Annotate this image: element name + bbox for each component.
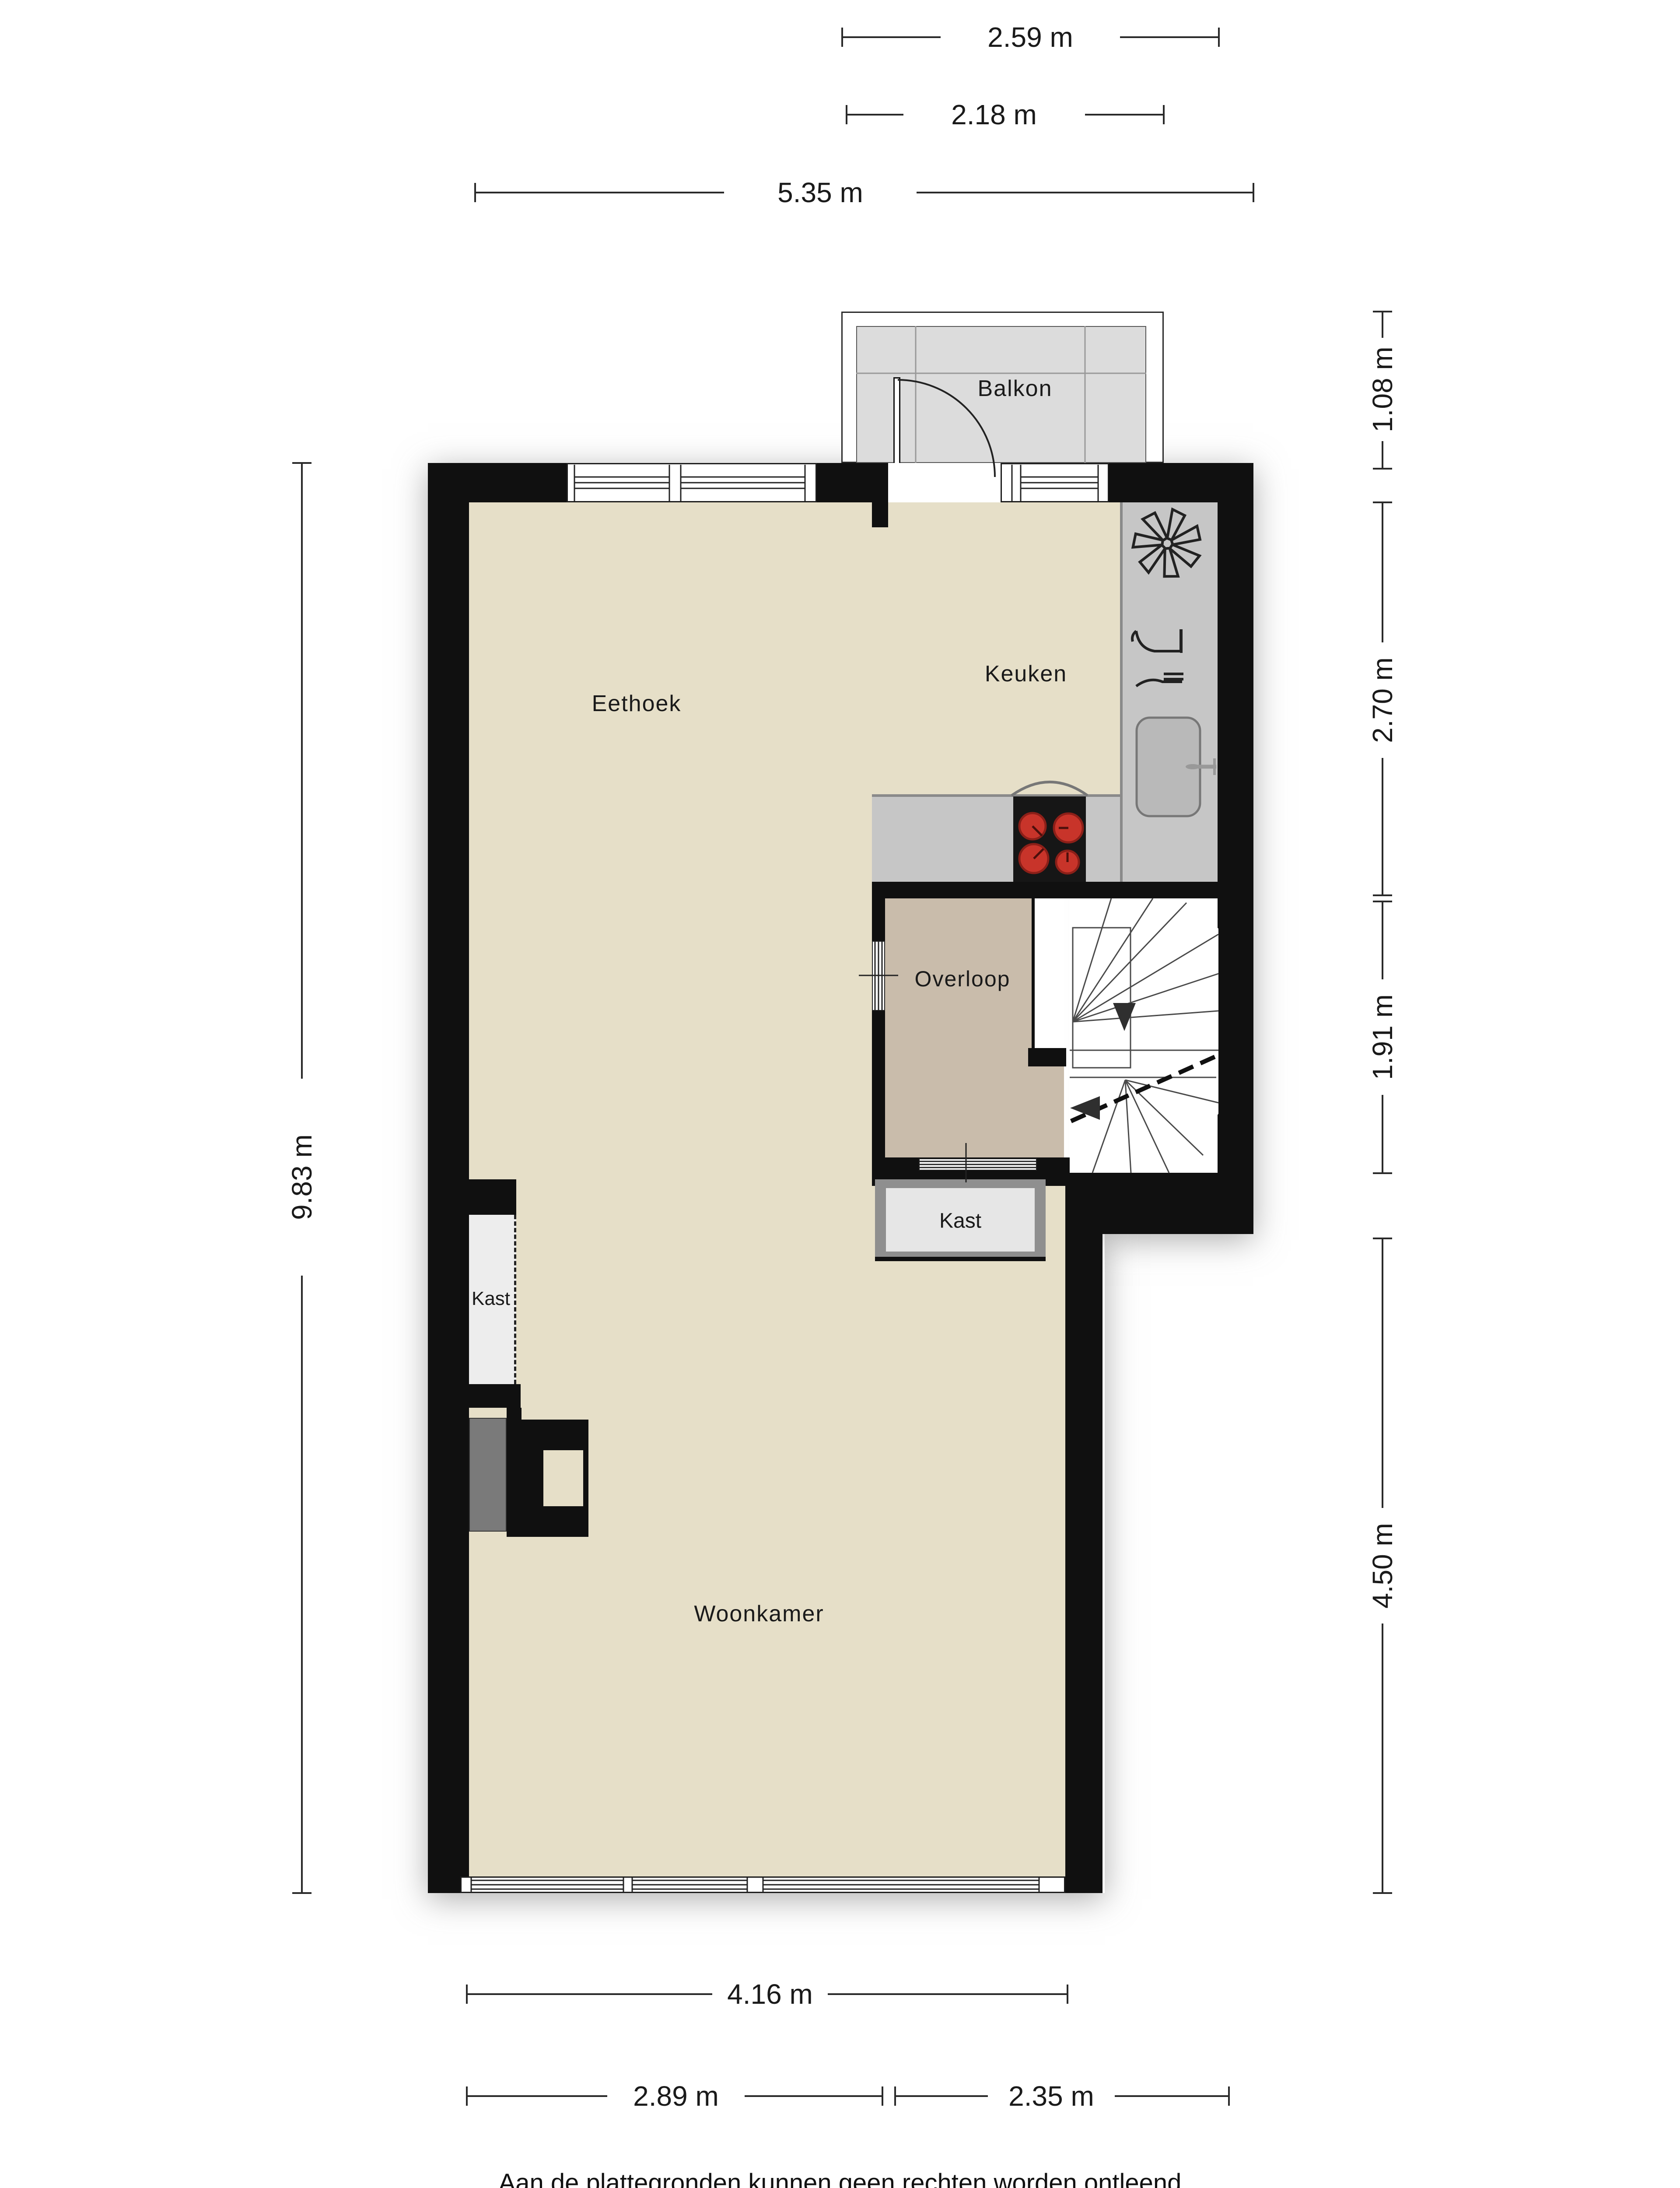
cooktop-burners bbox=[1019, 813, 1083, 873]
extractor-fan-icon bbox=[1130, 509, 1204, 582]
room-label-kast-room: Kast bbox=[939, 1209, 981, 1233]
window-glazing-overloop bbox=[859, 942, 898, 1010]
dim-bottom-235: 2.35 m bbox=[1008, 2080, 1094, 2112]
dishwasher-icon bbox=[1132, 629, 1183, 686]
dim-top-259: 2.59 m bbox=[987, 21, 1073, 53]
room-label-balkon: Balkon bbox=[978, 375, 1053, 402]
dim-right-191: 1.91 m bbox=[1366, 994, 1399, 1080]
dim-bottom-289: 2.89 m bbox=[633, 2080, 719, 2112]
dim-top-535: 5.35 m bbox=[777, 176, 863, 209]
room-label-kast-niche: Kast bbox=[472, 1288, 510, 1310]
room-label-overloop: Overloop bbox=[915, 966, 1011, 992]
window-glazing-dining bbox=[574, 465, 805, 501]
plan-linework bbox=[0, 0, 1680, 2188]
extractor-hood-arc bbox=[1011, 782, 1088, 796]
staircase-icon bbox=[1070, 898, 1220, 1173]
dim-bottom-416: 4.16 m bbox=[727, 1978, 813, 2010]
room-label-eethoek: Eethoek bbox=[592, 691, 682, 717]
window-glazing-living bbox=[471, 1878, 1039, 1892]
door-overloop-lines bbox=[920, 1143, 1036, 1182]
dim-right-108: 1.08 m bbox=[1366, 347, 1399, 432]
dim-left-983: 9.83 m bbox=[286, 1134, 318, 1220]
room-label-keuken: Keuken bbox=[985, 661, 1067, 687]
sink-icon bbox=[1137, 718, 1216, 816]
footer-disclaimer: Aan de plattegronden kunnen geen rechten… bbox=[0, 2168, 1680, 2188]
dim-top-218: 2.18 m bbox=[951, 98, 1037, 131]
dimension-lines bbox=[292, 28, 1392, 2106]
dim-right-270: 2.70 m bbox=[1366, 657, 1399, 743]
dim-right-450: 4.50 m bbox=[1366, 1523, 1399, 1609]
room-label-woonkamer: Woonkamer bbox=[694, 1601, 824, 1627]
window-glazing-kitchen bbox=[1012, 465, 1098, 501]
